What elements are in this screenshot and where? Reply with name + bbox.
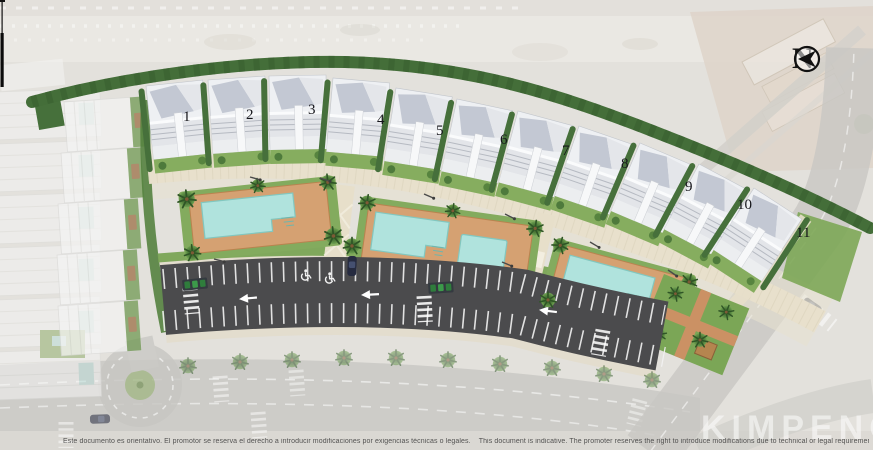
building-label: 2 xyxy=(246,108,254,123)
north-arrow-icon xyxy=(792,44,822,74)
building-block-2 xyxy=(200,76,271,168)
existing-houses-middle xyxy=(57,96,147,355)
building-label: 9 xyxy=(685,180,693,195)
building-label: 7 xyxy=(562,144,570,159)
disclaimer: Este documento es orientativo. El promot… xyxy=(63,438,869,445)
building-label: 11 xyxy=(796,226,810,241)
building-label: 10 xyxy=(737,198,752,213)
building-label: 4 xyxy=(377,113,385,128)
site-plan: 1 2 3 4 5 6 7 8 9 10 11 N KIMPENCI Este … xyxy=(0,0,873,450)
disclaimer-es: Este documento es orientativo. El promot… xyxy=(63,438,471,445)
building-label: 6 xyxy=(500,133,508,148)
car-icon xyxy=(347,256,357,276)
annotation-line xyxy=(0,0,6,90)
building-block-3 xyxy=(261,75,328,164)
recycle-bins-icon xyxy=(428,281,454,294)
building-label: 8 xyxy=(621,157,629,172)
car-icon xyxy=(90,414,110,424)
compass: N xyxy=(792,44,814,74)
building-label: 5 xyxy=(436,124,444,139)
building-label: 3 xyxy=(308,103,316,118)
site-plan-drawing xyxy=(0,0,873,450)
building-label: 1 xyxy=(183,110,191,125)
disclaimer-en: This document is indicative. The promote… xyxy=(479,438,869,445)
